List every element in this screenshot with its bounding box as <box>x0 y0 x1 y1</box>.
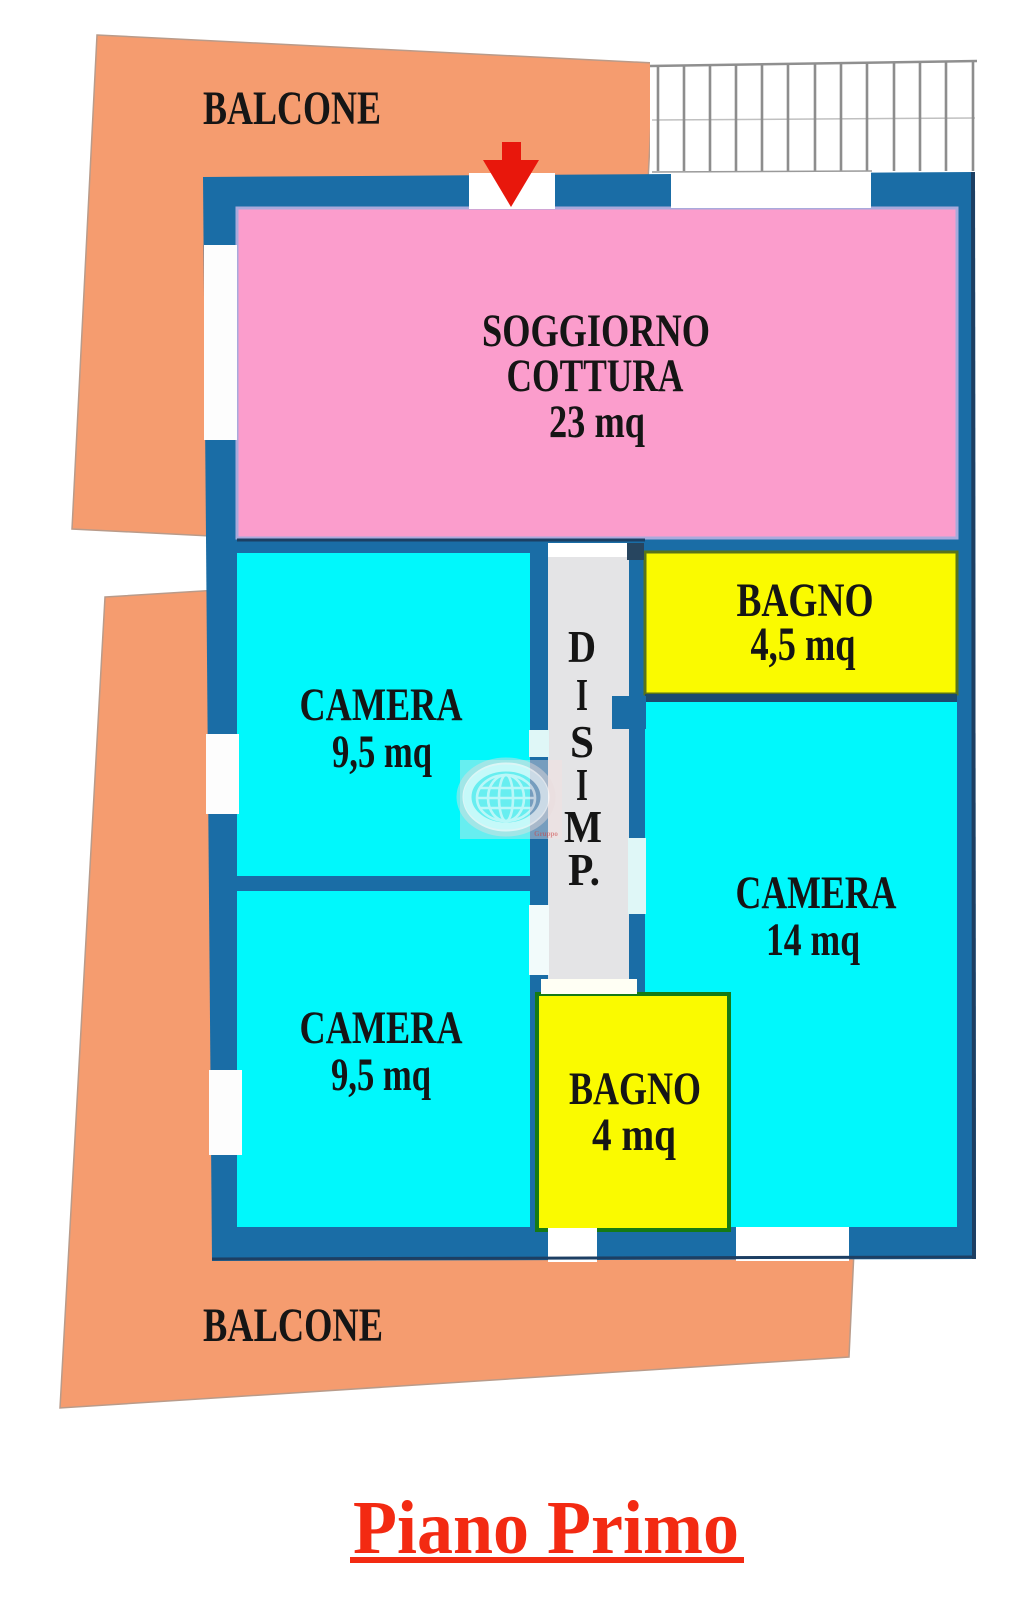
svg-text:23 mq: 23 mq <box>549 396 645 448</box>
svg-text:4 mq: 4 mq <box>592 1109 676 1161</box>
svg-text:9,5 mq: 9,5 mq <box>332 726 432 778</box>
svg-text:P.: P. <box>568 844 600 895</box>
svg-text:CAMERA: CAMERA <box>300 679 463 731</box>
svg-text:4,5 mq: 4,5 mq <box>751 618 856 671</box>
svg-text:9,5 mq: 9,5 mq <box>331 1049 431 1101</box>
svg-text:D: D <box>568 621 596 672</box>
svg-text:Gruppo: Gruppo <box>534 830 558 838</box>
svg-text:BAGNO: BAGNO <box>569 1063 701 1115</box>
svg-text:I: I <box>576 669 588 720</box>
svg-text:CAMERA: CAMERA <box>736 867 897 919</box>
svg-text:COTTURA: COTTURA <box>507 350 684 402</box>
svg-text:CAMERA: CAMERA <box>300 1002 463 1054</box>
svg-text:14 mq: 14 mq <box>766 914 860 966</box>
svg-text:BALCONE: BALCONE <box>203 1299 383 1352</box>
svg-text:BALCONE: BALCONE <box>203 82 381 135</box>
